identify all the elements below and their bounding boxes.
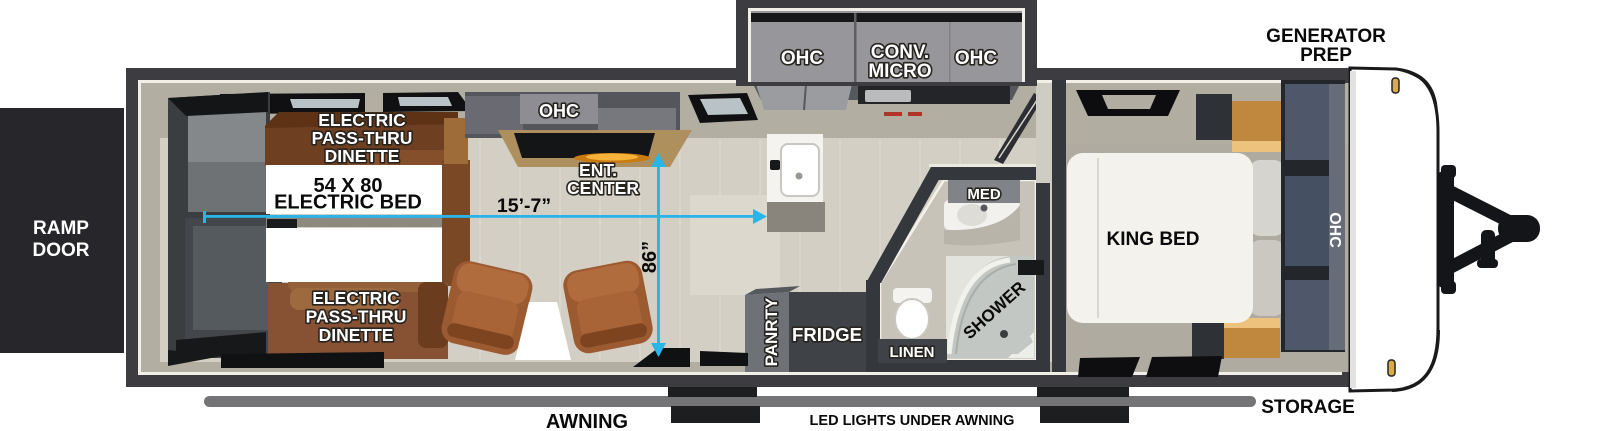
- svg-text:ELECTRIC: ELECTRIC: [312, 288, 400, 308]
- svg-text:AWNING: AWNING: [546, 411, 628, 431]
- svg-text:DOOR: DOOR: [33, 240, 90, 261]
- svg-text:OHC: OHC: [1326, 212, 1343, 248]
- svg-text:DINETTE: DINETTE: [319, 325, 394, 345]
- svg-text:KING BED: KING BED: [1107, 229, 1200, 250]
- svg-text:ELECTRIC: ELECTRIC: [318, 110, 406, 130]
- svg-text:GENERATOR: GENERATOR: [1266, 26, 1386, 47]
- svg-text:RAMP: RAMP: [33, 218, 89, 239]
- svg-text:LINEN: LINEN: [890, 344, 935, 361]
- svg-text:ELECTRIC BED: ELECTRIC BED: [274, 192, 422, 214]
- svg-text:MICRO: MICRO: [868, 61, 931, 82]
- svg-text:PREP: PREP: [1300, 45, 1352, 66]
- svg-text:DINETTE: DINETTE: [325, 146, 400, 166]
- svg-text:CENTER: CENTER: [567, 178, 639, 198]
- svg-text:STORAGE: STORAGE: [1261, 397, 1355, 418]
- svg-text:OHC: OHC: [955, 48, 998, 69]
- svg-text:PASS-THRU: PASS-THRU: [312, 128, 413, 148]
- svg-text:PASS-THRU: PASS-THRU: [306, 307, 407, 327]
- svg-text:OHC: OHC: [539, 101, 579, 121]
- svg-text:CONV.: CONV.: [871, 42, 929, 63]
- svg-text:ENT.: ENT.: [579, 160, 617, 180]
- svg-text:MED: MED: [967, 186, 1001, 203]
- svg-text:PANRTY: PANRTY: [762, 297, 781, 366]
- svg-text:86”: 86”: [639, 241, 661, 273]
- svg-text:15’-7”: 15’-7”: [497, 195, 551, 217]
- svg-text:FRIDGE: FRIDGE: [792, 324, 862, 345]
- svg-text:LED LIGHTS UNDER AWNING: LED LIGHTS UNDER AWNING: [810, 413, 1015, 429]
- svg-text:OHC: OHC: [781, 48, 824, 69]
